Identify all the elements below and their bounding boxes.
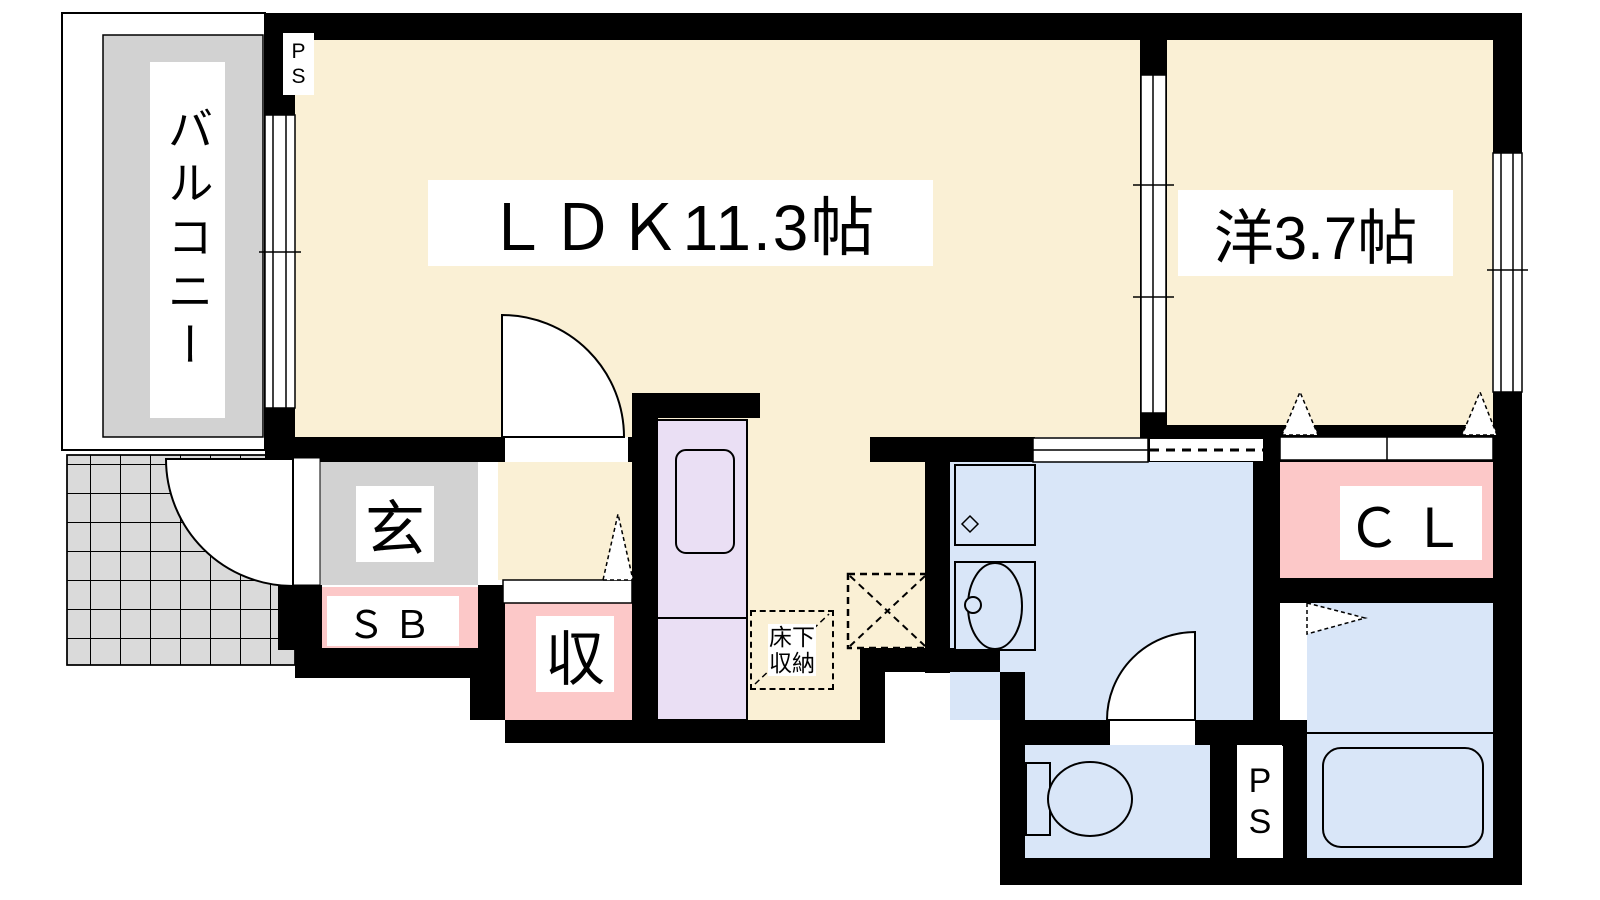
entrance-label: 玄 [356, 486, 434, 562]
storage-door [503, 580, 632, 603]
bathroom-doorway [1283, 603, 1307, 720]
washer-pan [955, 465, 1035, 545]
western-room-label: 洋3.7帖 [1178, 190, 1453, 276]
toilet-doorway [1110, 720, 1195, 745]
balcony-window [265, 115, 295, 408]
floor-plan: バルコニー ＬＤＫ11.3帖 洋3.7帖 玄 ＳＢ 収 ＣＬ 床下 収納 P S… [0, 0, 1600, 900]
western-window [1493, 153, 1522, 392]
ldk-doorway [505, 437, 627, 462]
underfloor-storage-label: 床下 収納 [750, 610, 834, 690]
toilet-tank [1026, 763, 1050, 835]
shoe-box-label: ＳＢ [327, 596, 459, 646]
entrance-doorway [293, 458, 320, 585]
ldk-label: ＬＤＫ11.3帖 [428, 180, 933, 266]
kitchen-sink [676, 450, 734, 553]
pipe-space-bottom-label: P S [1237, 746, 1283, 858]
pipe-space-top-label: P S [283, 33, 314, 95]
storage-label: 収 [536, 616, 614, 692]
floor-plan-drawing [0, 0, 1600, 900]
closet-label: ＣＬ [1340, 486, 1482, 560]
toilet-bowl [1048, 762, 1132, 836]
room-bathroom [1307, 603, 1493, 858]
vanity-faucet-icon [965, 597, 981, 613]
balcony-label: バルコニー [150, 62, 225, 418]
